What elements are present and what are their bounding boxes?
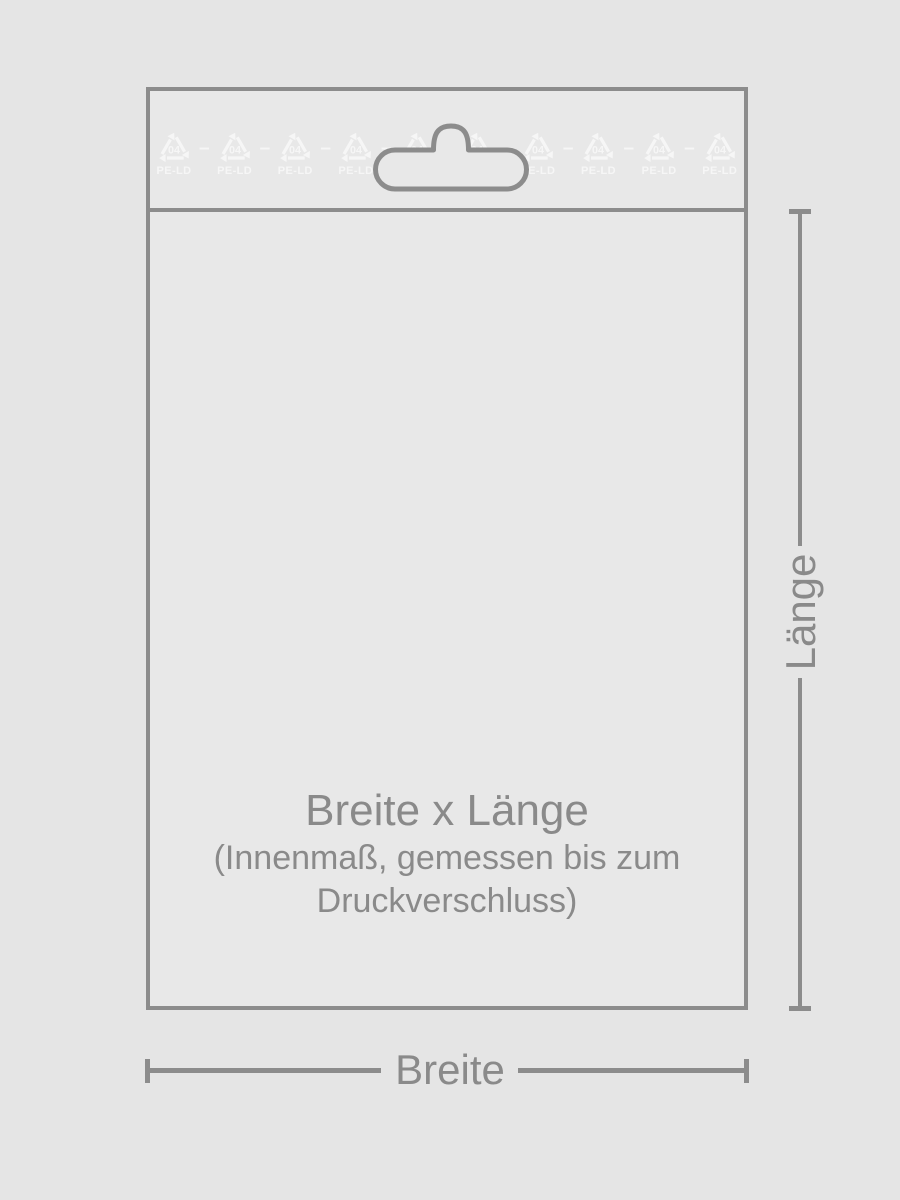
separator-dash: – [260, 139, 271, 158]
material-label: PE-LD [581, 165, 616, 178]
recycle-triangle-icon: 04 [154, 128, 194, 164]
length-dim-line-lower [798, 678, 802, 1010]
press-seal-line [150, 208, 744, 212]
separator-dash: – [624, 139, 635, 158]
recycling-icon: 04 PE-LD [639, 128, 679, 178]
recycle-triangle-icon: 04 [578, 128, 618, 164]
resin-code-label: 04 [592, 145, 604, 157]
material-label: PE-LD [157, 165, 192, 178]
size-note-line1: (Innenmaß, gemessen bis zum [150, 837, 744, 880]
euro-hang-hole-icon [373, 123, 529, 192]
recycle-triangle-icon: 04 [700, 128, 740, 164]
bag-outline: 04 PE-LD – 04 PE-LD – 04 PE-LD – 04 PE-L… [146, 87, 748, 1010]
resin-code-label: 04 [229, 145, 241, 157]
resin-code-label: 04 [714, 145, 726, 157]
material-label: PE-LD [702, 165, 737, 178]
length-dim-line-upper [798, 212, 802, 546]
width-dim-line-left [148, 1068, 381, 1073]
size-title: Breite x Länge [150, 785, 744, 837]
recycle-triangle-icon: 04 [639, 128, 679, 164]
recycle-triangle-icon: 04 [275, 128, 315, 164]
width-dim-right-cap [744, 1059, 749, 1083]
recycling-icon: 04 PE-LD [275, 128, 315, 178]
separator-dash: – [563, 139, 574, 158]
resin-code-label: 04 [532, 145, 544, 157]
recycle-triangle-icon: 04 [215, 128, 255, 164]
separator-dash: – [320, 139, 331, 158]
material-label: PE-LD [642, 165, 677, 178]
recycling-icon: 04 PE-LD [215, 128, 255, 178]
recycle-triangle-icon: 04 [336, 128, 376, 164]
resin-code-label: 04 [289, 145, 301, 157]
separator-dash: – [199, 139, 210, 158]
size-annotation: Breite x Länge (Innenmaß, gemessen bis z… [150, 785, 744, 923]
length-dim-label: Länge [780, 554, 822, 671]
separator-dash: – [684, 139, 695, 158]
recycling-icon: 04 PE-LD [578, 128, 618, 178]
material-label: PE-LD [278, 165, 313, 178]
width-dim-line-right [518, 1068, 748, 1073]
product-diagram: 04 PE-LD – 04 PE-LD – 04 PE-LD – 04 PE-L… [0, 0, 900, 1200]
recycling-icon: 04 PE-LD [700, 128, 740, 178]
size-note-line2: Druckverschluss) [150, 880, 744, 923]
recycling-icon: 04 PE-LD [154, 128, 194, 178]
material-label: PE-LD [217, 165, 252, 178]
resin-code-label: 04 [168, 145, 180, 157]
length-dim-bottom-cap [789, 1006, 811, 1011]
material-label: PE-LD [338, 165, 373, 178]
width-dim-label: Breite [395, 1049, 505, 1091]
resin-code-label: 04 [350, 145, 362, 157]
resin-code-label: 04 [653, 145, 665, 157]
recycling-icon: 04 PE-LD [336, 128, 376, 178]
